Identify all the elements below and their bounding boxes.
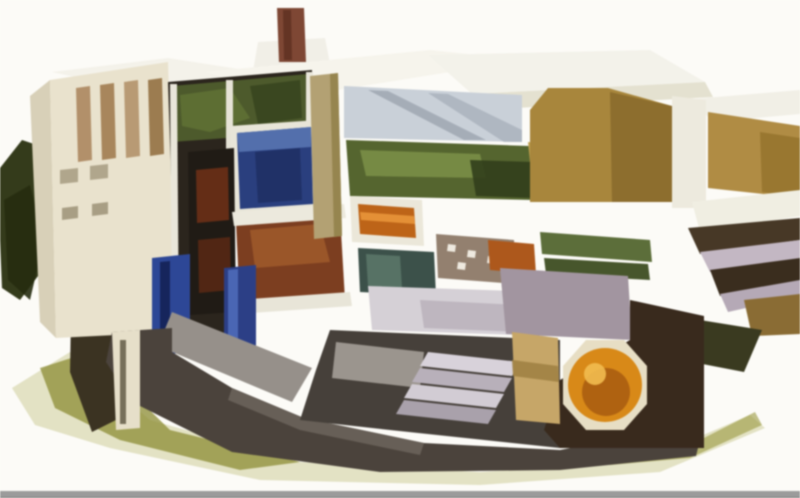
interior-green-dark [250, 80, 302, 124]
aux-window-strip-4 [148, 78, 164, 156]
fuel-pool-deep [255, 148, 302, 203]
generator-highlight [584, 363, 606, 385]
pipe-gallery-dot-a [447, 244, 456, 252]
aux-basement-ladder [120, 340, 126, 424]
aux-window-strip-2 [100, 83, 116, 160]
aux-window-c [62, 206, 78, 220]
vent-stack-shadow [283, 10, 292, 60]
turbine-green-dark [470, 160, 534, 198]
condenser-teal-light [366, 254, 402, 288]
turbine-green-light [360, 150, 486, 178]
heater-bay-floor [500, 268, 632, 340]
aux-window-strip-3 [124, 80, 140, 158]
pipe-gallery-dot-d [457, 262, 466, 270]
right-building-wall-dark [760, 132, 800, 198]
gable-white [672, 96, 706, 208]
feedwater-heaters [540, 232, 652, 262]
pipe-gallery-dot-b [467, 250, 476, 258]
aux-window-b [90, 164, 108, 180]
plant-cutaway-illustration [0, 0, 800, 498]
screenshot [0, 0, 800, 498]
bottom-gray-bar [0, 491, 800, 498]
aux-window-d [92, 202, 108, 216]
reactor-internals-upper [196, 167, 229, 223]
turbine-building-wall-dark [610, 92, 672, 202]
aux-window-strip-1 [76, 86, 92, 162]
aux-window-a [60, 168, 78, 184]
